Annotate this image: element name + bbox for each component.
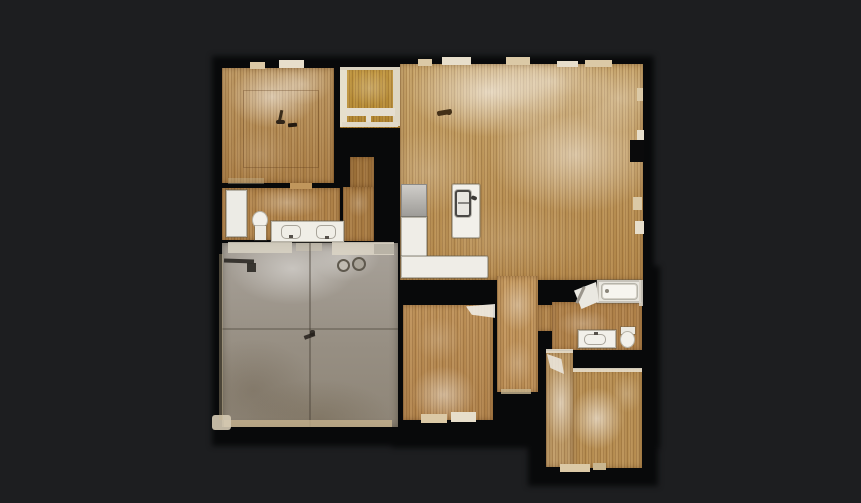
- bedroom-br-top-trim: [573, 368, 642, 372]
- window-tab-right: [637, 88, 643, 101]
- window-tab-right: [633, 197, 642, 210]
- kitchen-counter-left: [401, 217, 427, 258]
- garage-shelf-clutter: [374, 244, 394, 254]
- wall-notch-right: [630, 140, 644, 162]
- bath-left-shower-closet: [226, 190, 247, 237]
- room-tl-bottom-streak: [228, 178, 264, 184]
- hallway-end-trim: [501, 389, 531, 394]
- garage-shelf-clutter: [228, 242, 292, 253]
- bedroom-bl-window-tab: [451, 412, 476, 422]
- closet-trim-left: [340, 68, 347, 127]
- door-tab: [585, 60, 612, 67]
- garage-floor-mark: [310, 330, 315, 336]
- garage-pipe-joint: [247, 263, 256, 272]
- garage-water-heater: [352, 257, 366, 271]
- toilet-left-base: [255, 226, 266, 240]
- floorplan-view[interactable]: [0, 0, 861, 503]
- island-sink-divider: [458, 202, 469, 204]
- door-tab: [557, 61, 578, 67]
- kitchen-fridge: [401, 184, 427, 217]
- bedroom-br-door-tab: [560, 464, 590, 472]
- ceiling-fan-artifact: [288, 123, 297, 128]
- bedroom-br-entry-trim: [546, 349, 573, 353]
- ceiling-fan-artifact: [276, 120, 285, 124]
- garage-left-trim: [219, 254, 223, 420]
- scan-artifact: [447, 112, 451, 115]
- faucet-mark: [289, 235, 293, 238]
- bedroom-br-door-tab: [593, 463, 606, 470]
- bath-right-wall-trim: [639, 280, 643, 306]
- bedroom-br-door-artifact: [547, 354, 564, 374]
- garage-water-heater: [337, 259, 350, 272]
- window-tab-right: [635, 221, 644, 234]
- door-tab: [418, 59, 432, 66]
- plan-details-layer: [0, 0, 861, 503]
- faucet-mark: [594, 332, 598, 335]
- bedroom-bl-window-tab: [421, 414, 447, 423]
- sink-outline: [584, 334, 606, 345]
- door-tab: [506, 57, 530, 65]
- closet-trim-right: [393, 69, 400, 126]
- closet-trim-top: [340, 67, 400, 70]
- bedroom-bl-door-artifact: [466, 304, 495, 328]
- garage-door-trim: [224, 420, 392, 427]
- door-tab: [250, 62, 265, 69]
- window-tab-right: [637, 130, 644, 140]
- door-tab: [442, 57, 471, 65]
- floor-seam-outline: [243, 90, 319, 168]
- toilet-right-bowl: [620, 331, 635, 348]
- faucet-mark: [325, 236, 329, 239]
- kitchen-counter-bottom: [401, 256, 488, 278]
- bathtub-drain: [605, 289, 609, 293]
- bath-left-door-gap: [290, 183, 312, 189]
- door-tab: [279, 60, 304, 68]
- closet-trim-bottom: [342, 122, 398, 127]
